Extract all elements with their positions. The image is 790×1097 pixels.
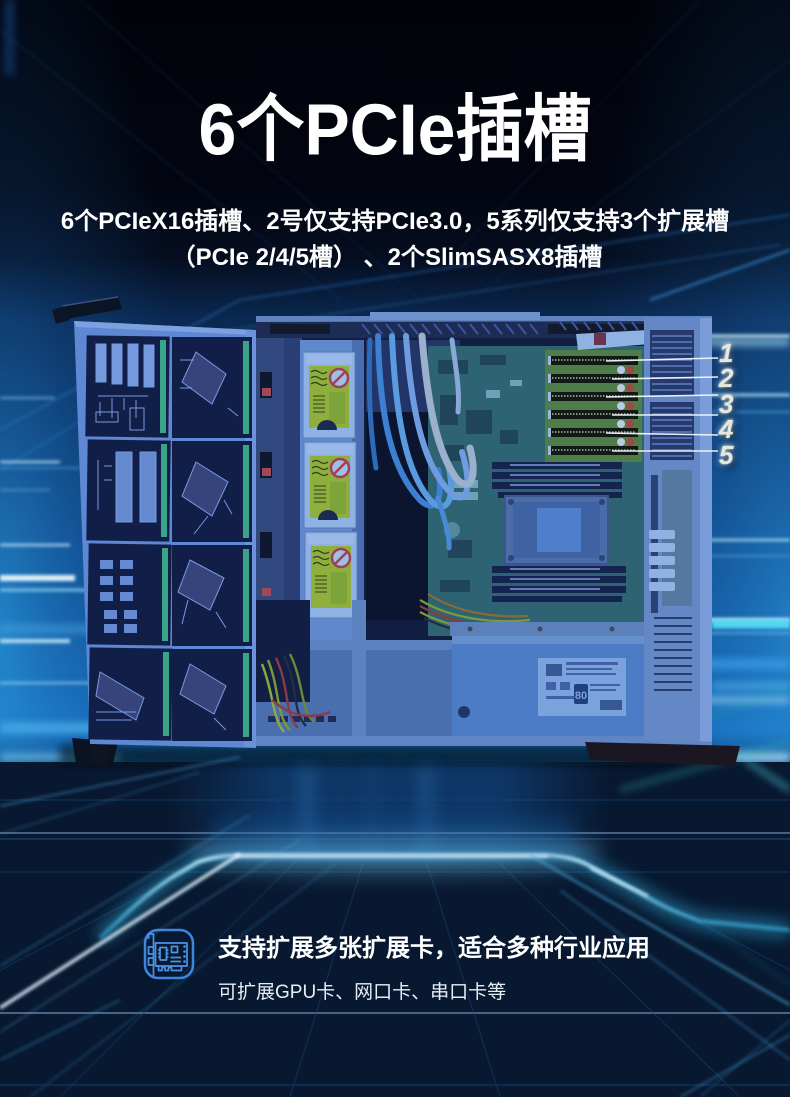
svg-text:80: 80 xyxy=(575,690,587,702)
